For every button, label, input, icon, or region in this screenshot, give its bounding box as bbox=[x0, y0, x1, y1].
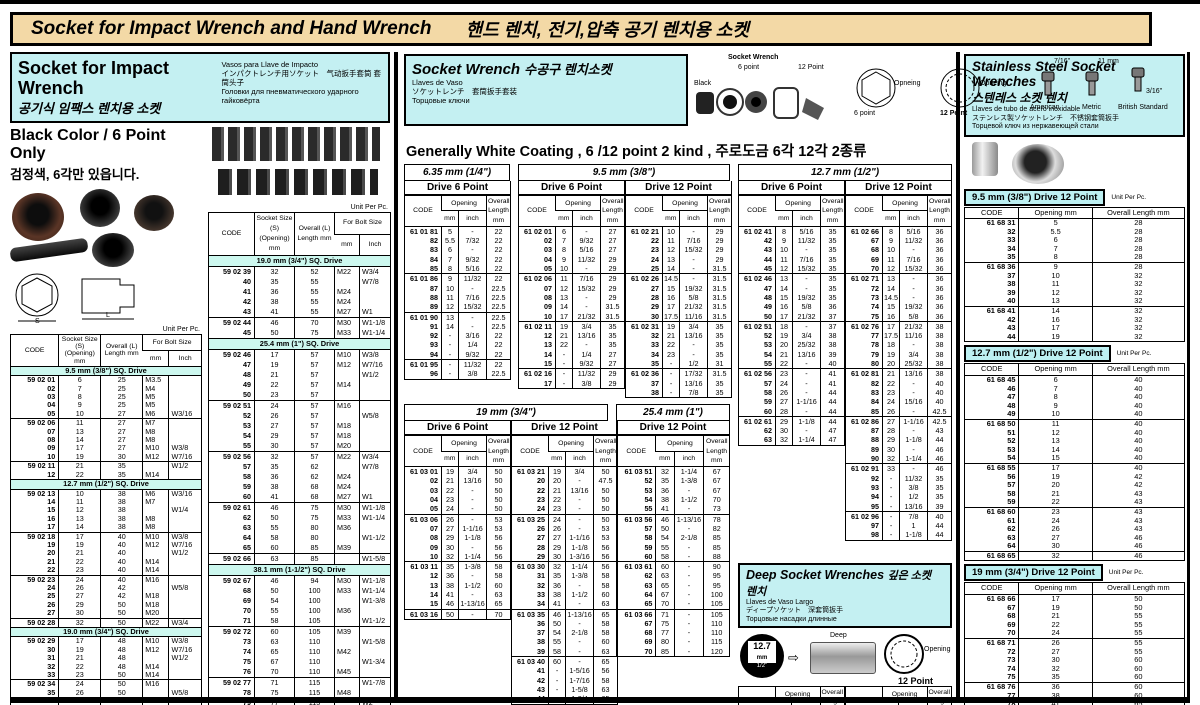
table-25-4mm: 25.4 mm (1")Drive 12 PointCODEOpeningOve… bbox=[616, 404, 730, 657]
table-row: 0322-50 bbox=[405, 486, 511, 495]
table-row: 59 02 7260105M39 bbox=[209, 627, 391, 638]
table-row: 0279/3227 bbox=[519, 236, 625, 245]
table-row: 79193/438 bbox=[846, 350, 952, 359]
impact-sub-ru: Головки для пневматического ударного гай… bbox=[221, 87, 382, 105]
table-row: 2413-29 bbox=[626, 255, 732, 264]
drive-table: CODEOpeningOverall Length mmmminch61 01 … bbox=[404, 195, 511, 380]
drive-size-badge: 12.7mm 1/2" bbox=[740, 634, 784, 678]
coating-heading-kr: 주로도금 6각 12각 2종류 bbox=[715, 144, 866, 160]
s-label: S bbox=[35, 318, 40, 325]
table-row: 59 02 131038M6W3/16 bbox=[11, 489, 202, 498]
table-header-row: CODEOpeningOverall Length mm bbox=[405, 436, 511, 451]
deep-socket-table: CODEOpeningOverall Length mmmminch61 03 … bbox=[845, 686, 952, 705]
table-row: 61 02 61291-1/844 bbox=[739, 416, 845, 426]
drive-table: CODEOpeningOverall Length mmmminch61 02 … bbox=[518, 195, 625, 389]
table-row: 7055100M36 bbox=[209, 606, 391, 616]
stainless-section-3: 19 mm (3/4") Drive 12 Point Unit Per Pc. bbox=[964, 564, 1185, 581]
arrow-icon: ⇨ bbox=[788, 650, 799, 666]
table-row: 49165/836 bbox=[739, 302, 845, 311]
table-row: 1441-63 bbox=[405, 590, 511, 599]
table-row: 22117/1629 bbox=[626, 236, 732, 245]
table-row: 47840 bbox=[965, 393, 1185, 402]
unit-per-pc-label: Unit Per Pc. bbox=[1109, 569, 1144, 576]
table-row: 743260 bbox=[965, 665, 1185, 674]
table-row: 3322-35 bbox=[626, 340, 732, 349]
stainless-panel: Stainless Steel Socket Wrenches 스텐레스 소켓 … bbox=[960, 52, 1190, 697]
table-row: 61 01 95-11/3222 bbox=[405, 360, 511, 370]
table-header-row: CODEOpeningOverall Length mm bbox=[739, 687, 845, 702]
socket-wrench-title: Socket Wrench 수공구 렌치소켓 bbox=[412, 59, 680, 78]
table-row: 604168M27W1 bbox=[209, 492, 391, 503]
table-row: 322113/1635 bbox=[626, 331, 732, 340]
deep-subtitles: Llaves de Vaso Largo ディープソケット 深套筒扳手 Торц… bbox=[746, 599, 944, 625]
table-row: 08291-1/856 bbox=[405, 533, 511, 542]
table-row: 61 68 653246 bbox=[965, 551, 1185, 561]
badge-size: 12.7 bbox=[753, 641, 771, 651]
table-row: 482157W1/2 bbox=[209, 370, 391, 380]
table-row: 471957M12W7/16 bbox=[209, 360, 391, 370]
table-header-row: CODEOpeningOverall Length mm bbox=[617, 436, 730, 451]
table-row: 7314.5-36 bbox=[846, 293, 952, 302]
table-row: 43-1-5/863 bbox=[512, 685, 618, 694]
drive-column: Drive 6 PointCODEOpeningOverall Length m… bbox=[404, 421, 511, 705]
table-row: 6570-105 bbox=[617, 599, 730, 609]
table-row: 14-1/427 bbox=[519, 350, 625, 359]
black-color-note: Black Color / 6 Point Only bbox=[10, 127, 202, 163]
coating-heading-en: Generally White Coating , 6 /12 point 2 … bbox=[406, 144, 711, 160]
page-banner: Socket for Impact Wrench and Hand Wrench… bbox=[10, 12, 1152, 46]
table-row: 04925M5 bbox=[11, 401, 202, 409]
table-row: 8222-40 bbox=[846, 379, 952, 388]
drive-section-band: 19.0 mm (3/4") SQ. Drive bbox=[11, 628, 202, 637]
stainless-table-1: CODEOpening mmOverall Length mm61 68 315… bbox=[964, 207, 1185, 343]
table-header-row: CODEOpeningOverall Length mm bbox=[512, 436, 618, 451]
drive-table: CODEOpeningOverall Length mmmminch61 03 … bbox=[616, 435, 730, 657]
table-title: 19 mm (3/4") bbox=[404, 404, 608, 421]
table-row: 61 03 21193/450 bbox=[512, 467, 618, 477]
table-row: 0524-50 bbox=[405, 504, 511, 514]
american-label: American bbox=[1030, 104, 1060, 111]
opening-label-12pt: Opneing bbox=[980, 80, 1006, 87]
drive-header: Drive 6 Point bbox=[404, 421, 511, 435]
table-row: 61 68 36928 bbox=[965, 263, 1185, 272]
table-row: 7977115W2 bbox=[209, 698, 391, 705]
table-row: 61 02 2614.5-31.5 bbox=[626, 274, 732, 284]
table-row: 733060 bbox=[965, 656, 1185, 665]
table-row: 69117/1636 bbox=[846, 255, 952, 264]
table-row: 98-1-1/844 bbox=[846, 530, 952, 540]
impact-socket-set-photo bbox=[208, 125, 390, 203]
deep-table: CODEOpeningOverall Length mmmminch61 03 … bbox=[738, 686, 952, 705]
table-row: 38-7/835 bbox=[626, 388, 732, 398]
table-row: 92-11/3235 bbox=[846, 474, 952, 483]
table-row: 54381-1/270 bbox=[617, 495, 730, 504]
table-header-row: CODESocket Size (S) (Opening) mmOverall … bbox=[209, 213, 391, 235]
table-row: 7158105W1-1/2 bbox=[209, 616, 391, 627]
drive-header: Drive 6 Point bbox=[738, 181, 845, 195]
opening-label-6pt: Opneing bbox=[894, 80, 920, 87]
table-row: 88117/1622.5 bbox=[405, 293, 511, 302]
table-header-row: CODEOpeningOverall Length mm bbox=[846, 687, 952, 702]
table-row: 59 02 563257M22W3/4 bbox=[209, 452, 391, 463]
table-row: 0423-50 bbox=[405, 495, 511, 504]
deep-sub-ru: Торцовые насадки длинные bbox=[746, 616, 944, 625]
table-row: 2514-31.5 bbox=[626, 264, 732, 274]
table-row: 59 02 614675M30W1-1/8 bbox=[209, 503, 391, 514]
impact-col-a: Black Color / 6 Point Only 검정색, 6각만 있읍니다… bbox=[10, 125, 202, 705]
table-row: 61 02 7113-36 bbox=[846, 274, 952, 284]
table-row: 4310-35 bbox=[739, 245, 845, 254]
table-row: 9114-22.5 bbox=[405, 322, 511, 331]
table-row: 61 03 6160-90 bbox=[617, 562, 730, 572]
table-row: 3423-35 bbox=[626, 350, 732, 359]
table-6-35mm: 6.35 mm (1/4")Drive 6 PointCODEOpeningOv… bbox=[404, 164, 510, 380]
table-row: 8710-22.5 bbox=[405, 284, 511, 293]
extension-bar-photo bbox=[9, 238, 88, 263]
deep-label: Deep bbox=[830, 632, 847, 639]
deep-title: Deep Socket Wrenches 깊은 소켓 렌치 bbox=[746, 567, 944, 599]
mid-col-b: 12.7 mm (1/2")Drive 6 PointCODEOpeningOv… bbox=[738, 164, 952, 705]
table-row: 682155 bbox=[965, 612, 1185, 621]
table-row: 5724-41 bbox=[739, 379, 845, 388]
table-row: 59 02 061127M7 bbox=[11, 419, 202, 428]
mid-row-1: 6.35 mm (1/4")Drive 6 PointCODEOpeningOv… bbox=[404, 164, 730, 398]
table-row: 61 02 11193/435 bbox=[519, 321, 625, 331]
drive-header: Drive 6 Point bbox=[404, 181, 511, 195]
table-row: 231215/3229 bbox=[626, 245, 732, 254]
british-size-label: 3/16" bbox=[1146, 88, 1162, 95]
table-row: 101930M12W7/16 bbox=[11, 453, 202, 462]
table-row: 7214-36 bbox=[846, 284, 952, 293]
table-row: 531440 bbox=[965, 446, 1185, 455]
socket-wrench-title-kr: 수공구 렌치소켓 bbox=[524, 62, 611, 77]
table-row: 091727M10W3/8 bbox=[11, 444, 202, 452]
table-row: 35828 bbox=[965, 253, 1185, 262]
table-row: 95-13/1639 bbox=[846, 502, 952, 512]
impact-sockets-photo bbox=[10, 185, 202, 269]
table-row: 97-144 bbox=[846, 521, 952, 530]
table-row: 61 02 16-11/3229 bbox=[519, 369, 625, 379]
table-row: 5541-73 bbox=[617, 504, 730, 514]
table-row: 94-1/235 bbox=[846, 492, 952, 501]
table-row: 371032 bbox=[965, 272, 1185, 281]
table-row: 362752M18 bbox=[11, 697, 202, 705]
table-row: 191940M12W7/16 bbox=[11, 541, 202, 549]
table-row: 03825M5 bbox=[11, 393, 202, 401]
l-label: L bbox=[106, 312, 110, 319]
table-row: 656085M39 bbox=[209, 543, 391, 554]
deep-diagram: 12.7mm 1/2" ⇨ Deep Opening 12 Poin bbox=[738, 628, 952, 686]
mid-row-2: 19 mm (3/4")Drive 6 PointCODEOpeningOver… bbox=[404, 404, 730, 705]
table-row: 07271-1/1653 bbox=[405, 524, 511, 533]
table-row: 273050M20 bbox=[11, 609, 202, 618]
table-row: 413655M24 bbox=[209, 287, 391, 297]
table-row: 7085-120 bbox=[617, 647, 730, 657]
badge-inch: 1/2" bbox=[740, 663, 784, 669]
stainless-table-3: CODEOpening mmOverall Length mm61 68 661… bbox=[964, 582, 1185, 705]
impact-title-kr: 공기식 임팩스 렌치용 소켓 bbox=[18, 98, 213, 117]
table-row: 1322-35 bbox=[519, 340, 625, 349]
drive-column: Drive 12 PointCODEOpeningOverall Length … bbox=[511, 421, 618, 705]
socket-wrench-label: Socket Wrench bbox=[728, 54, 778, 61]
table-row: 8728-43 bbox=[846, 426, 952, 435]
socket-type-diagrams: Socket Wrench 6 point 12 Point Black bbox=[694, 54, 952, 140]
six-point-caption: 6 point bbox=[854, 110, 875, 117]
table-header-row: CODEOpeningOverall Length mm bbox=[405, 196, 511, 211]
table-row: 7465110M42 bbox=[209, 647, 391, 657]
table-row: 29301-3/1656 bbox=[512, 552, 618, 562]
table-header-row: CODEOpening mmOverall Length mm bbox=[965, 364, 1185, 376]
table-row: 61 02 06117/1629 bbox=[519, 274, 625, 284]
table-row: 61 02 6685/1636 bbox=[846, 226, 952, 236]
table-row: 44117/1635 bbox=[739, 255, 845, 264]
table-row: 7818-38 bbox=[846, 340, 952, 349]
drive-column: Drive 6 PointCODEOpeningOverall Length m… bbox=[404, 181, 511, 380]
table-row: 051027M6W3/16 bbox=[11, 410, 202, 419]
socket-wrench-subtitles: Llaves de Vaso ソケットレンチ 套筒扳手套装 Торцовые к… bbox=[412, 78, 680, 105]
drive-column: Drive 6 PointCODEOpeningOverall Length m… bbox=[738, 181, 845, 541]
table-row: 61 03 11351-3/858 bbox=[405, 562, 511, 572]
table-header-row: CODESocket Size (S) (Opening) mmOverall … bbox=[11, 335, 202, 351]
table-row: 582143 bbox=[965, 490, 1185, 499]
impact-header-box: Socket for Impact Wrench 공기식 임팩스 렌치용 소켓 … bbox=[10, 52, 390, 123]
table-row: 34728 bbox=[965, 245, 1185, 254]
table-row: 3855-60 bbox=[512, 637, 618, 646]
catalog-page: Socket for Impact Wrench and Hand Wrench… bbox=[0, 0, 1200, 705]
table-row: 542957M18 bbox=[209, 431, 391, 441]
table-row: 61 02 016-27 bbox=[519, 226, 625, 236]
drive-column: Drive 6 PointCODEOpeningOverall Length m… bbox=[518, 181, 625, 398]
impact-sub-ja: インパクトレンチ用ソケット 气动扳手套筒 套筒头子 bbox=[221, 69, 382, 87]
table-row: 3441-63 bbox=[512, 599, 618, 609]
table-row: 59 02 512457M16 bbox=[209, 401, 391, 412]
table-row: 67911/3236 bbox=[846, 236, 952, 245]
table-row: 59 02 674694M30W1-1/8 bbox=[209, 576, 391, 587]
table-row: 6230-47 bbox=[739, 426, 845, 435]
table-row: 741519/3236 bbox=[846, 302, 952, 311]
table-row: 02725M4 bbox=[11, 385, 202, 393]
drive-header: Drive 12 Point bbox=[616, 421, 730, 435]
impact-title: Socket for Impact Wrench bbox=[18, 58, 213, 98]
table-row: 532757M18 bbox=[209, 421, 391, 431]
socket-photo-square bbox=[134, 195, 174, 231]
table-row: 6775-110 bbox=[617, 619, 730, 628]
table-row: 61 68 501140 bbox=[965, 419, 1185, 428]
table-row: 455075M33W1-1/4 bbox=[209, 328, 391, 339]
table-row: 423855M24 bbox=[209, 297, 391, 307]
impact-size-table: CODESocket Size (S) (Opening) mmOverall … bbox=[10, 334, 202, 705]
table-row: 61 02 5623-41 bbox=[739, 369, 845, 379]
table-row: 44-1-3/465 bbox=[512, 694, 618, 704]
banner-title-kr: 핸드 렌치, 전기,압축 공기 렌치용 소켓 bbox=[465, 16, 748, 42]
table-row: 141138M7 bbox=[11, 498, 202, 506]
table-row: 593868M24 bbox=[209, 482, 391, 492]
table-row: 59 02 01625M3.5 bbox=[11, 376, 202, 385]
table-row: 492257M14 bbox=[209, 380, 391, 390]
table-row: 671950 bbox=[965, 604, 1185, 613]
table-row: 0930-56 bbox=[405, 543, 511, 552]
table-title: 25.4 mm (1") bbox=[616, 404, 730, 421]
socket-wrench-title-en: Socket Wrench bbox=[412, 61, 520, 78]
drive-section-band: 38.1 mm (1-1/2") SQ. Drive bbox=[209, 565, 391, 576]
table-row: 332350M14 bbox=[11, 671, 202, 680]
twelve-point-label: 12 Point bbox=[798, 64, 824, 71]
table-row: 63321-1/447 bbox=[739, 435, 845, 445]
table-row: 643046 bbox=[965, 542, 1185, 551]
table-row: 59271-1/1644 bbox=[739, 397, 845, 406]
table-row: 242642W5/8 bbox=[11, 584, 202, 592]
stainless-t1-title: 9.5 mm (3/8") Drive 12 Point bbox=[964, 189, 1105, 206]
table-row: 151238W1/4 bbox=[11, 506, 202, 514]
table-title: 6.35 mm (1/4") bbox=[404, 164, 510, 181]
table-row: 61 68 31528 bbox=[965, 219, 1185, 228]
american-size-label: 7/16" bbox=[1054, 58, 1070, 65]
table-row: 171438M8 bbox=[11, 523, 202, 532]
table-row: 59 02 112135W1/2 bbox=[11, 462, 202, 471]
table-row: 122235M14 bbox=[11, 471, 202, 480]
table-row: 122113/1635 bbox=[519, 331, 625, 340]
stainless-section-1: 9.5 mm (3/8") Drive 12 Point Unit Per Pc… bbox=[964, 189, 1185, 206]
deep-12point-label: 12 Point bbox=[898, 676, 933, 686]
deep-socket-table: CODEOpeningOverall Length mmmminch61 03 … bbox=[738, 686, 845, 705]
table-row: 1236-58 bbox=[405, 571, 511, 580]
drive-section-band: 9.5 mm (3/8") SQ. Drive bbox=[11, 366, 202, 375]
socket-wrench-panel: Socket Wrench 수공구 렌치소켓 Llaves de Vaso ソケ… bbox=[394, 52, 960, 697]
drive-table: CODEOpeningOverall Length mmmminch61 03 … bbox=[404, 435, 511, 620]
stainless-sub-ru: Торцевой ключ из нержавеющей стали bbox=[972, 123, 1177, 132]
unit-per-pc-label: Unit Per Pc. bbox=[1117, 350, 1152, 357]
table-row: 61 03 4060-65 bbox=[512, 657, 618, 667]
impact-table-2: CODESocket Size (S) (Opening) mmOverall … bbox=[208, 212, 390, 705]
table-row: 522657W5/8 bbox=[209, 411, 391, 421]
drive-header: Drive 12 Point bbox=[845, 181, 952, 195]
table-title: 12.7 mm (1/2") bbox=[738, 164, 952, 181]
hex-6point-icon bbox=[852, 66, 908, 110]
table-row: 6467-100 bbox=[617, 590, 730, 599]
sub-ru: Торцовые ключи bbox=[412, 96, 680, 105]
table-row: 2322-50 bbox=[512, 495, 618, 504]
table-19mm: 19 mm (3/4")Drive 6 PointCODEOpeningOver… bbox=[404, 404, 608, 705]
opening-12point-icon bbox=[882, 632, 928, 678]
socket-photo-small bbox=[92, 233, 134, 267]
stainless-sockets-photo bbox=[964, 140, 1185, 186]
table-row: 625075M33W1-1/4 bbox=[209, 513, 391, 523]
banner-title-en: Socket for Impact Wrench and Hand Wrench bbox=[31, 18, 431, 40]
table-row: 37-13/1635 bbox=[626, 379, 732, 388]
table-row: 61 02 4185/1635 bbox=[739, 226, 845, 236]
impact-panel: Socket for Impact Wrench 공기식 임팩스 렌치용 소켓 … bbox=[10, 52, 394, 697]
table-row: 572042 bbox=[965, 481, 1185, 490]
table-row: 5750-82 bbox=[617, 524, 730, 533]
table-row: 352650W5/8 bbox=[11, 689, 202, 697]
table-row: 75165/836 bbox=[846, 312, 952, 322]
table-row: 491040 bbox=[965, 410, 1185, 419]
table-row: 391232 bbox=[965, 289, 1185, 298]
table-row: 701215/3236 bbox=[846, 264, 952, 274]
table-row: 0914-31.5 bbox=[519, 302, 625, 311]
table-row: 61 02 36-17/3231.5 bbox=[626, 369, 732, 379]
table-row: 6980-115 bbox=[617, 637, 730, 646]
table-row: 52193/438 bbox=[739, 331, 845, 340]
coating-heading: Generally White Coating , 6 /12 point 2 … bbox=[406, 140, 952, 161]
impact-table-1: CODESocket Size (S) (Opening) mmOverall … bbox=[10, 334, 202, 705]
table-row: 17-3/829 bbox=[519, 379, 625, 389]
table-row: 61 03 6671-105 bbox=[617, 609, 730, 619]
table-row: 88291-1/844 bbox=[846, 435, 952, 444]
deep-socket-section: Deep Socket Wrenches 깊은 소켓 렌치 Llaves de … bbox=[738, 563, 952, 705]
table-row: 2020-47.5 bbox=[512, 476, 618, 485]
table-header-row: CODEOpeningOverall Length mm bbox=[519, 196, 625, 211]
table-row: 511240 bbox=[965, 429, 1185, 438]
table-row: 401332 bbox=[965, 297, 1185, 306]
table-row: 61 03 01193/450 bbox=[405, 467, 511, 477]
socket-wrench-header-box: Socket Wrench 수공구 렌치소켓 Llaves de Vaso ソケ… bbox=[404, 54, 688, 126]
stainless-table: CODEOpening mmOverall Length mm61 68 456… bbox=[964, 363, 1185, 561]
table-row: 61 02 5118-37 bbox=[739, 321, 845, 331]
metric-label: Metric bbox=[1082, 104, 1101, 111]
table-row: 3236-58 bbox=[512, 581, 618, 590]
table-row: 6058-88 bbox=[617, 552, 730, 562]
table-row: 212240M14 bbox=[11, 558, 202, 566]
table-row: 59 02 232440M16 bbox=[11, 575, 202, 584]
socket-photo-rusty bbox=[12, 193, 64, 241]
table-row: 61 03 51321-1/467 bbox=[617, 467, 730, 477]
sub-ja: ソケットレンチ 套筒扳手套装 bbox=[412, 87, 680, 96]
table-row: 42911/3235 bbox=[739, 236, 845, 245]
table-row: 7875115M48 bbox=[209, 688, 391, 698]
table-row: 61 02 86271-1/1642.5 bbox=[846, 416, 952, 426]
table-row: 521340 bbox=[965, 437, 1185, 446]
deep-sub-ja: ディープソケット 深套筒扳手 bbox=[746, 607, 944, 616]
table-row: 583662M24 bbox=[209, 472, 391, 482]
table-row: 541540 bbox=[965, 454, 1185, 463]
unit-per-pc-label: Unit Per Pc. bbox=[1111, 194, 1146, 201]
table-row: 61 02 4613-35 bbox=[739, 274, 845, 284]
table-row: 6954100W1-3/8 bbox=[209, 596, 391, 606]
drive-header: Drive 6 Point bbox=[518, 181, 625, 195]
table-row: 48940 bbox=[965, 402, 1185, 411]
circle-12point-icon bbox=[936, 66, 992, 110]
drive-header: Drive 12 Point bbox=[511, 421, 618, 435]
socket-diagram-row: S L bbox=[10, 269, 202, 325]
table-row: 773860 bbox=[965, 692, 1185, 701]
table-header-row: CODEOpening mmOverall Length mm bbox=[965, 583, 1185, 595]
british-standard-label: British Standard bbox=[1118, 104, 1168, 111]
table-row: 612443 bbox=[965, 517, 1185, 526]
table-row: 59 02 7771115W1-7/8 bbox=[209, 678, 391, 689]
table-row: 59 02 461757M10W3/8 bbox=[209, 350, 391, 361]
deep-opening-label: Opening bbox=[924, 646, 950, 653]
table-row: 61 03 30321-1/456 bbox=[512, 562, 618, 572]
table-row: 4714-35 bbox=[739, 284, 845, 293]
table-row: 8526-42.5 bbox=[846, 407, 952, 417]
table-row: 61 01 815-22 bbox=[405, 226, 511, 236]
table-row: 90321-1/446 bbox=[846, 454, 952, 464]
badge-mm: mm bbox=[757, 655, 768, 661]
socket-wrench-header: Socket Wrench 수공구 렌치소켓 Llaves de Vaso ソケ… bbox=[404, 54, 952, 140]
table-row: 301948M12W7/16 bbox=[11, 646, 202, 654]
table-row: 04911/3229 bbox=[519, 255, 625, 264]
drive-table: CODEOpeningOverall Length mmmminch61 02 … bbox=[625, 195, 732, 398]
table-row: 325.528 bbox=[965, 228, 1185, 237]
deep-title-en: Deep Socket Wrenches bbox=[746, 568, 884, 582]
drive-header: Drive 12 Point bbox=[625, 181, 732, 195]
table-row: 635580M36 bbox=[209, 523, 391, 533]
table-row: 5522-40 bbox=[739, 359, 845, 369]
impact-titles: Socket for Impact Wrench 공기식 임팩스 렌치용 소켓 bbox=[18, 58, 213, 117]
table-row: 2626-53 bbox=[512, 524, 618, 533]
table-row: 202140W1/2 bbox=[11, 549, 202, 557]
